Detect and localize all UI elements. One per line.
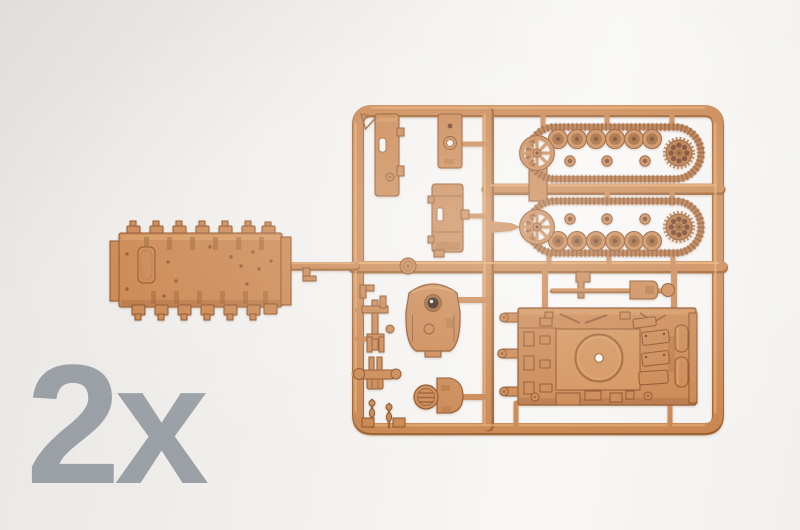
quantity-label: 2x xyxy=(26,340,203,510)
shovel-tool-part xyxy=(552,272,675,299)
superstructure-part-upper xyxy=(438,114,462,168)
turret-part xyxy=(406,284,460,357)
turret-roof-part xyxy=(414,378,463,413)
superstructure-part-lower xyxy=(428,184,469,257)
gate-boss xyxy=(400,258,416,274)
track-holder-tab xyxy=(489,221,521,233)
hull-deck-part xyxy=(498,308,697,405)
hull-tub-part xyxy=(110,221,291,320)
model-kit-sprue-photo: 2x xyxy=(0,0,800,530)
hull-tub-runner xyxy=(283,263,356,281)
hull-plate-part xyxy=(375,114,404,196)
track-assembly-bottom xyxy=(520,201,701,253)
